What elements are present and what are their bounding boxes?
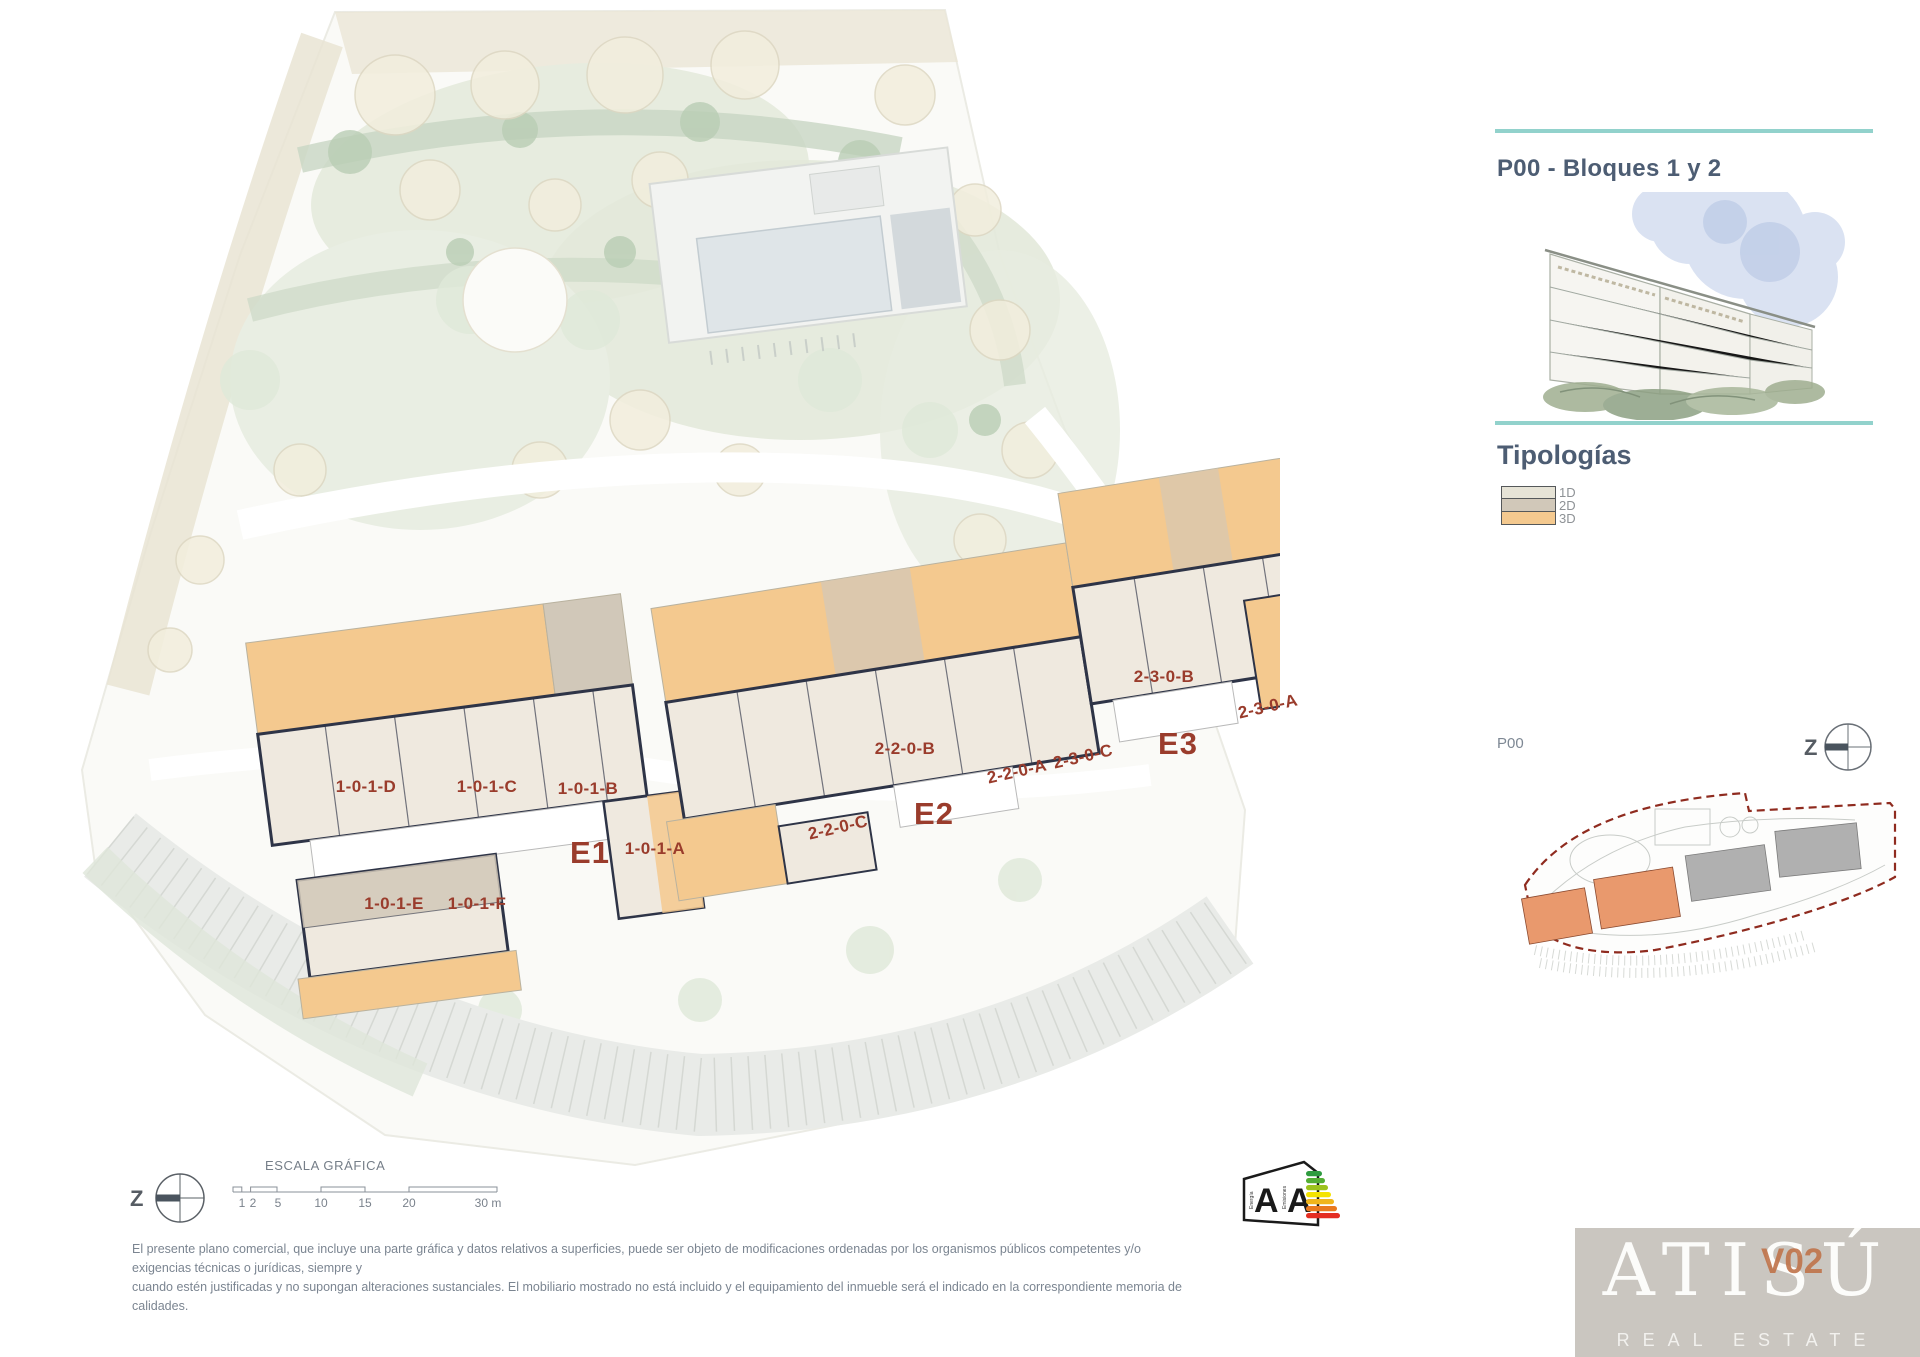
legend-swatch-1d [1501, 486, 1556, 499]
legend-label-3d: 3D [1556, 512, 1576, 525]
page-title: P00 - Bloques 1 y 2 [1497, 155, 1721, 183]
scale-tick-label: 2 [250, 1196, 257, 1210]
entrance-label-e1: E1 [570, 835, 610, 871]
teal-rule-middle [1495, 421, 1873, 425]
legend-swatch-2d [1501, 499, 1556, 512]
unit-label: 2-3-0-B [1134, 667, 1194, 687]
plan-version-badge: V02 [1761, 1242, 1823, 1282]
teal-rule-top [1495, 129, 1873, 133]
scale-bar-title: ESCALA GRÁFICA [265, 1158, 385, 1173]
svg-text:Z: Z [1804, 735, 1817, 760]
energy-scale-bars [1306, 1171, 1340, 1218]
unit-label: 1-0-1-D [336, 777, 396, 797]
building-render-image [1540, 192, 1845, 420]
scale-tick-label: 20 [402, 1196, 415, 1210]
legal-disclaimer: El presente plano comercial, que incluye… [132, 1240, 1192, 1316]
scale-tick-label: 10 [314, 1196, 327, 1210]
scale-tick-label: 15 [358, 1196, 371, 1210]
playground-area [463, 248, 567, 352]
unit-label: 1-0-1-A [625, 839, 685, 859]
brand-logo-block: V02 ATISÚ REAL ESTATE [1575, 1228, 1920, 1357]
unit-label: 1-0-1-E [364, 894, 424, 914]
energy-rating-icon: Energía Emisiones A A [1240, 1157, 1350, 1231]
entrance-label-e3: E3 [1158, 726, 1198, 762]
scale-tick-label: 5 [275, 1196, 282, 1210]
unit-label: 1-0-1-B [558, 779, 618, 799]
scale-tick-label: 30 m [475, 1196, 502, 1210]
site-plan-drawing [0, 0, 1280, 1250]
unit-label: 1-0-1-F [448, 894, 507, 914]
scale-tick-label: 1 [239, 1196, 246, 1210]
legend-swatch-3d [1501, 512, 1556, 525]
unit-label: 1-0-1-C [457, 777, 517, 797]
site-overview-minimap [1505, 765, 1905, 1075]
legend-row-3d: 3D [1501, 512, 1576, 525]
entrance-label-e2: E2 [914, 796, 954, 832]
brand-tagline: REAL ESTATE [1575, 1330, 1920, 1351]
north-compass-icon: Z [118, 1158, 228, 1240]
tipologias-heading: Tipologías [1497, 440, 1632, 471]
minimap-level-label: P00 [1497, 735, 1524, 752]
brand-name: ATISÚ [1575, 1228, 1920, 1312]
svg-text:Z: Z [130, 1186, 143, 1211]
typology-legend: 1D 2D 3D [1501, 486, 1576, 525]
disclaimer-line-1: El presente plano comercial, que incluye… [132, 1240, 1192, 1278]
unit-label: 2-2-0-B [875, 739, 935, 759]
svg-text:A: A [1254, 1182, 1279, 1220]
disclaimer-line-2: cuando estén justificadas y no supongan … [132, 1278, 1192, 1316]
